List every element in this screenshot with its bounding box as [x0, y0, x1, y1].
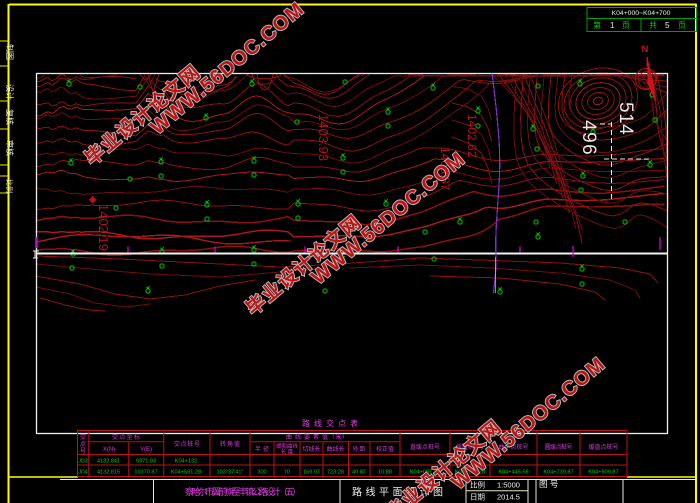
svg-text:校正值: 校正值	[376, 445, 394, 453]
svg-text:K04+445.58: K04+445.58	[498, 470, 528, 476]
svg-text:70: 70	[284, 470, 290, 476]
svg-text:9371.93: 9371.93	[136, 459, 156, 465]
svg-text:103°37′41″: 103°37′41″	[216, 470, 243, 476]
svg-text:514: 514	[615, 102, 636, 135]
svg-text:日期: 日期	[470, 493, 485, 502]
svg-text:1402.62: 1402.62	[465, 114, 479, 158]
svg-text:点: 点	[80, 440, 86, 448]
svg-text:半 径: 半 径	[255, 445, 269, 453]
svg-text:X(N): X(N)	[103, 447, 115, 453]
svg-text:40.87: 40.87	[352, 470, 366, 476]
svg-text:切线长: 切线长	[302, 445, 320, 453]
svg-text:JD4: JD4	[78, 470, 88, 476]
svg-text:K04+809.87: K04+809.87	[588, 470, 618, 476]
svg-text:10370.87: 10370.87	[134, 470, 157, 476]
svg-text:159.97: 159.97	[303, 470, 320, 476]
svg-text:10.88: 10.88	[378, 470, 392, 476]
svg-text:496: 496	[578, 120, 599, 156]
svg-text:2014.5: 2014.5	[497, 493, 520, 502]
svg-text:页: 页	[622, 21, 630, 30]
svg-text:300: 300	[257, 470, 266, 476]
svg-text:号: 号	[80, 448, 86, 455]
svg-text:路 线 交 点 表: 路 线 交 点 表	[302, 418, 358, 428]
svg-text:比例: 比例	[5, 179, 14, 193]
svg-text:缓直点桩号: 缓直点桩号	[589, 443, 619, 451]
svg-text:4132.841: 4132.841	[97, 459, 120, 465]
svg-text:复核: 复核	[5, 109, 15, 125]
svg-text:直缓点桩号: 直缓点桩号	[410, 443, 440, 451]
svg-text:1: 1	[610, 21, 615, 30]
svg-text:圆缓点桩号: 圆缓点桩号	[545, 443, 573, 451]
svg-text:K04+581.28: K04+581.28	[171, 470, 201, 476]
svg-text:共: 共	[649, 21, 657, 30]
svg-text:K04+000~K04+700: K04+000~K04+700	[612, 10, 671, 17]
svg-text:JD3: JD3	[78, 459, 88, 465]
svg-text:设计: 设计	[5, 84, 15, 100]
svg-text:723.28: 723.28	[327, 470, 344, 476]
svg-text:1:5000: 1:5000	[497, 481, 520, 490]
svg-text:曲线长: 曲线长	[326, 445, 344, 453]
svg-text:WWW.56DOC.COM: WWW.56DOC.COM	[308, 148, 470, 289]
svg-text:审核: 审核	[5, 140, 15, 156]
svg-text:页: 页	[678, 21, 686, 30]
svg-text:1403.93: 1403.93	[316, 114, 331, 161]
svg-text:交: 交	[80, 433, 86, 441]
svg-text:图 号: 图 号	[539, 479, 558, 489]
svg-text:N: N	[642, 44, 649, 55]
svg-text:交点坐标: 交点坐标	[112, 433, 140, 441]
svg-text:1402.19: 1402.19	[96, 204, 111, 251]
svg-text:外 距: 外 距	[353, 445, 366, 453]
svg-text:长 度: 长 度	[281, 448, 294, 456]
svg-text:Y(E): Y(E)	[140, 447, 152, 453]
svg-text:5: 5	[665, 21, 670, 30]
svg-text:第: 第	[593, 20, 601, 30]
svg-text:K04+739.87: K04+739.87	[543, 470, 573, 476]
svg-text:曲 线 要 素 值（米）: 曲 线 要 素 值（米）	[286, 433, 348, 441]
svg-text:K04+132: K04+132	[175, 459, 198, 465]
svg-text:交点桩号: 交点桩号	[174, 440, 200, 448]
svg-text:WWW.56DOC.COM: WWW.56DOC.COM	[147, 0, 309, 139]
svg-text:转角值: 转角值	[220, 440, 240, 448]
svg-text:制图: 制图	[5, 44, 15, 60]
svg-text:4132.815: 4132.815	[97, 470, 120, 476]
svg-text:察哈尔市翼前旗至丰镇公路设计（五）: 察哈尔市翼前旗至丰镇公路设计（五）	[185, 486, 301, 497]
